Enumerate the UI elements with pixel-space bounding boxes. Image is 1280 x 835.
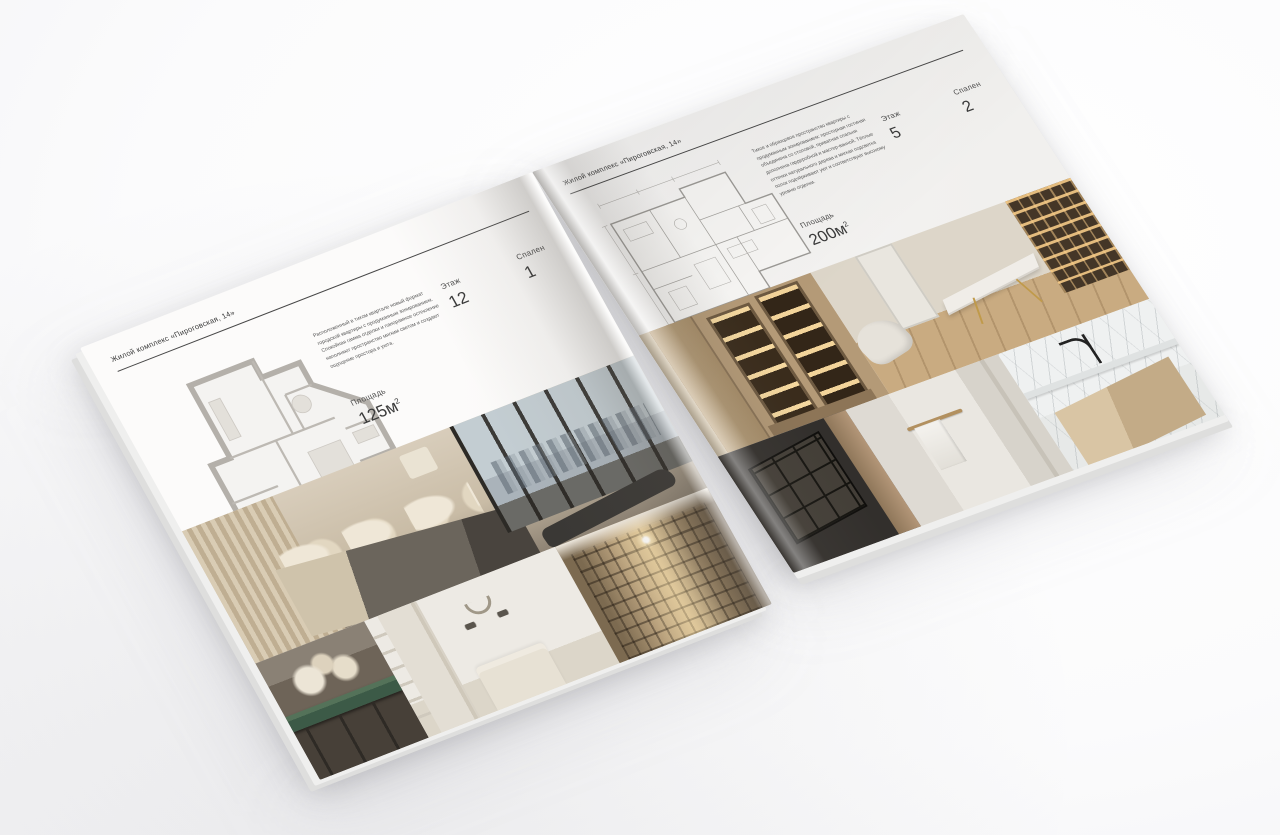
spec-bedrooms: Спален 2 <box>952 80 996 117</box>
photo-backdrop: Жилой комплекс «Пироговская, 14» <box>0 0 1280 835</box>
bedrooms-value: 2 <box>958 90 995 116</box>
towel-shape <box>914 419 967 470</box>
floor-value: 5 <box>886 120 915 143</box>
unit-description: Расположенный в тихом квартале новый фор… <box>312 286 454 371</box>
lamp-shape <box>399 446 439 479</box>
window-shape <box>855 243 940 330</box>
floor-value: 12 <box>445 287 474 312</box>
backlit-shelf-shape <box>1005 178 1130 294</box>
spec-bedrooms: Спален 1 <box>515 243 559 283</box>
